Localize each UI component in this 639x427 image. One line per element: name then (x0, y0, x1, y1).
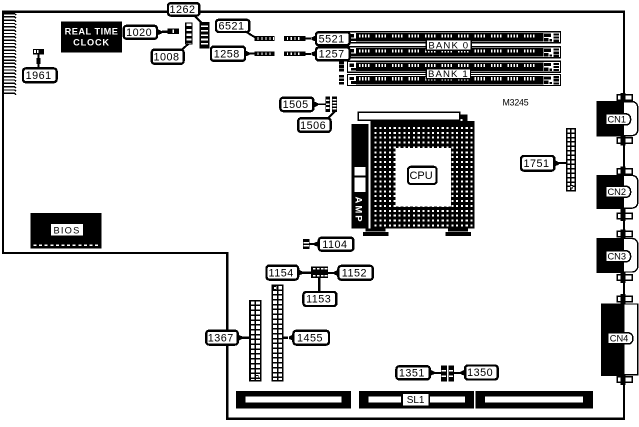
svg-text:1367: 1367 (208, 332, 234, 344)
svg-text:CN2: CN2 (607, 187, 626, 197)
svg-text:1262: 1262 (169, 4, 195, 16)
svg-text:BANK 1: BANK 1 (428, 69, 469, 80)
svg-text:1258: 1258 (214, 48, 240, 60)
svg-text:M3245: M3245 (503, 97, 529, 107)
svg-text:1505: 1505 (283, 99, 309, 111)
svg-text:1008: 1008 (153, 51, 179, 63)
svg-text:1350: 1350 (467, 367, 493, 379)
svg-text:1455: 1455 (297, 332, 323, 344)
svg-text:6521: 6521 (218, 21, 244, 33)
svg-text:1020: 1020 (126, 27, 152, 39)
svg-text:CPU: CPU (409, 170, 432, 182)
svg-text:1104: 1104 (322, 239, 347, 251)
svg-text:AMP: AMP (353, 197, 364, 224)
svg-text:CLOCK: CLOCK (73, 37, 110, 47)
svg-text:5521: 5521 (319, 33, 345, 45)
svg-text:1351: 1351 (399, 367, 425, 379)
svg-text:1751: 1751 (523, 158, 549, 170)
svg-text:1152: 1152 (342, 267, 367, 279)
svg-text:1257: 1257 (319, 49, 345, 61)
svg-text:BIOS: BIOS (53, 225, 80, 235)
svg-text:BANK 0: BANK 0 (428, 40, 469, 51)
svg-text:1154: 1154 (268, 267, 293, 279)
svg-text:CN4: CN4 (610, 334, 629, 344)
svg-text:SL1: SL1 (407, 395, 425, 406)
svg-text:1961: 1961 (26, 70, 52, 82)
svg-text:1506: 1506 (300, 120, 326, 132)
svg-text:CN1: CN1 (607, 115, 626, 125)
svg-text:1153: 1153 (306, 294, 331, 306)
svg-text:CN3: CN3 (607, 252, 626, 262)
svg-text:REAL TIME: REAL TIME (65, 26, 119, 36)
